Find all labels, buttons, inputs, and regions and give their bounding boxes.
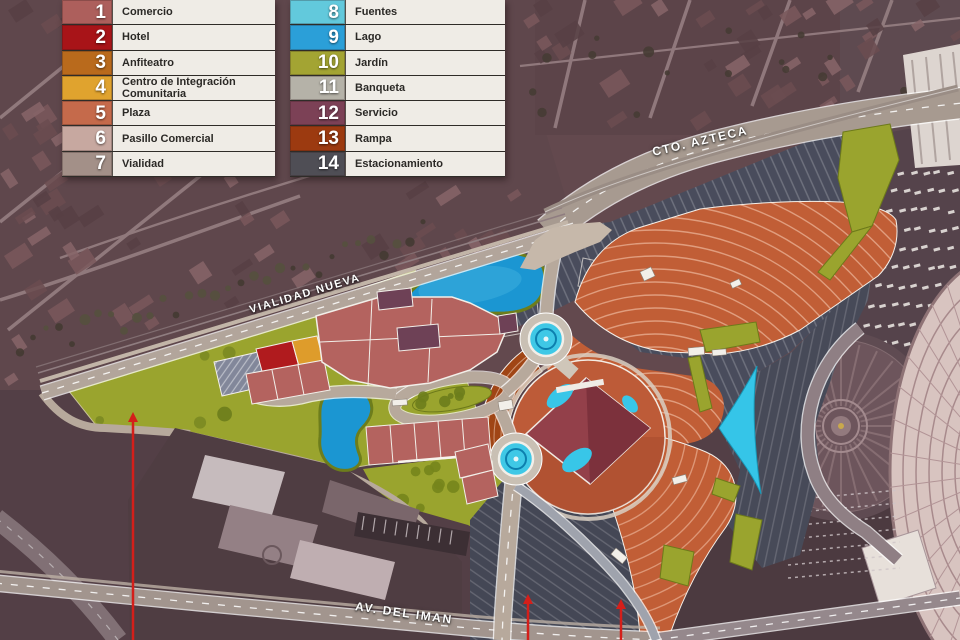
legend-label-panel: Banqueta <box>345 76 505 100</box>
legend-item: 12Servicio <box>290 101 505 126</box>
legend-label-panel: Rampa <box>345 126 505 150</box>
legend-number: 2 <box>95 28 106 47</box>
legend-number: 6 <box>95 129 106 148</box>
legend-swatch: 4 <box>62 76 112 100</box>
legend-label: Comercio <box>122 6 173 18</box>
legend-number: 14 <box>318 154 339 173</box>
service-block <box>498 313 518 334</box>
legend-swatch: 8 <box>290 0 345 24</box>
legend-label-panel: Vialidad <box>112 152 275 176</box>
legend-swatch: 9 <box>290 25 345 49</box>
legend-item: 8Fuentes <box>290 0 505 25</box>
legend-item: 10Jardín <box>290 51 505 76</box>
legend-item: 13Rampa <box>290 126 505 151</box>
legend-number: 12 <box>318 104 339 123</box>
legend-item: 2Hotel <box>62 25 275 50</box>
legend-label-panel: Fuentes <box>345 0 505 24</box>
legend-swatch: 7 <box>62 152 112 176</box>
legend-label-panel: Lago <box>345 25 505 49</box>
legend-label-panel: Plaza <box>112 101 275 125</box>
legend-item: 5Plaza <box>62 101 275 126</box>
legend-swatch: 6 <box>62 126 112 150</box>
legend-swatch: 14 <box>290 152 345 176</box>
legend-label-panel: Jardín <box>345 51 505 75</box>
legend-label: Vialidad <box>122 158 164 170</box>
legend-label: Lago <box>355 31 381 43</box>
legend-number: 3 <box>95 53 106 72</box>
legend-swatch: 11 <box>290 76 345 100</box>
legend-number: 5 <box>95 104 106 123</box>
legend-number: 9 <box>328 28 339 47</box>
plaza-center-marker <box>838 423 844 429</box>
legend-number: 11 <box>319 78 339 97</box>
legend-label: Hotel <box>122 31 150 43</box>
legend-column-1: 1Comercio2Hotel3Anfiteatro4Centro de Int… <box>62 0 275 177</box>
legend-label-panel: Estacionamiento <box>345 152 505 176</box>
legend-label-panel: Centro de Integración Comunitaria <box>112 76 275 100</box>
legend-item: 14Estacionamiento <box>290 152 505 177</box>
legend-swatch: 3 <box>62 51 112 75</box>
legend-swatch: 5 <box>62 101 112 125</box>
legend-label: Servicio <box>355 107 398 119</box>
legend-swatch: 10 <box>290 51 345 75</box>
legend-label-panel: Pasillo Comercial <box>112 126 275 150</box>
legend-label-panel: Hotel <box>112 25 275 49</box>
legend-number: 1 <box>95 3 106 22</box>
legend-swatch: 1 <box>62 0 112 24</box>
legend-label: Anfiteatro <box>122 57 174 69</box>
legend-number: 10 <box>318 53 339 72</box>
legend-label: Pasillo Comercial <box>122 133 214 145</box>
fountain-roundabout <box>490 433 542 485</box>
legend-swatch: 12 <box>290 101 345 125</box>
legend-label: Centro de Integración Comunitaria <box>122 76 275 100</box>
legend-item: 9Lago <box>290 25 505 50</box>
fountain-roundabout <box>520 313 572 365</box>
service-block <box>377 288 413 310</box>
legend-label: Estacionamiento <box>355 158 443 170</box>
legend-number: 4 <box>95 78 106 97</box>
legend-item: 11Banqueta <box>290 76 505 101</box>
legend-item: 6Pasillo Comercial <box>62 126 275 151</box>
legend-label: Fuentes <box>355 6 397 18</box>
legend-swatch: 2 <box>62 25 112 49</box>
legend-label: Jardín <box>355 57 388 69</box>
legend-number: 7 <box>95 154 106 173</box>
legend-column-2: 8Fuentes9Lago10Jardín11Banqueta12Servici… <box>290 0 505 177</box>
legend-label-panel: Servicio <box>345 101 505 125</box>
legend-item: 4Centro de Integración Comunitaria <box>62 76 275 101</box>
legend-number: 13 <box>318 129 339 148</box>
legend-label-panel: Anfiteatro <box>112 51 275 75</box>
legend-label-panel: Comercio <box>112 0 275 24</box>
legend-item: 7Vialidad <box>62 152 275 177</box>
site-plan-map: 1Comercio2Hotel3Anfiteatro4Centro de Int… <box>0 0 960 640</box>
service-block <box>397 324 440 351</box>
legend-label: Banqueta <box>355 82 405 94</box>
legend-label: Rampa <box>355 133 392 145</box>
legend-number: 8 <box>328 3 339 22</box>
legend-item: 3Anfiteatro <box>62 51 275 76</box>
legend-item: 1Comercio <box>62 0 275 25</box>
legend-label: Plaza <box>122 107 150 119</box>
legend-swatch: 13 <box>290 126 345 150</box>
